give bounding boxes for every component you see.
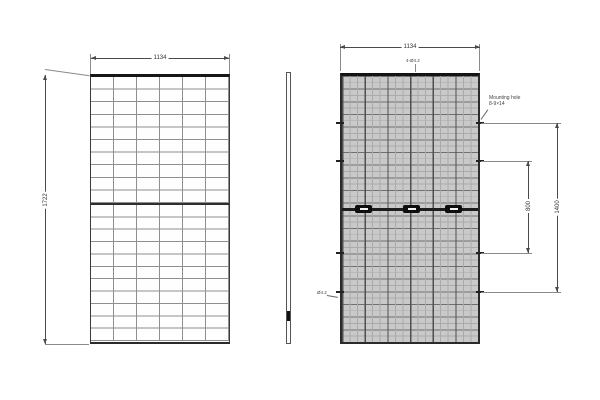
leader-line (481, 109, 489, 119)
dim-arrow (526, 248, 530, 253)
top-hole-note: 4-Ø4.2 (406, 58, 420, 63)
back-inner-dim-label: 800 (526, 199, 532, 213)
mounting-hole-note-line2: 8-9×14 (489, 102, 520, 108)
junction-box (403, 205, 420, 213)
mounting-hole-tick (336, 252, 344, 254)
extension-line (481, 292, 561, 293)
back-panel-frame (340, 73, 480, 344)
side-junction-box-mark (287, 311, 290, 321)
mounting-hole-tick (336, 160, 344, 162)
back-outer-dim-label: 1400 (555, 198, 561, 215)
side-panel-frame (286, 72, 291, 344)
leader-line (415, 64, 416, 72)
mounting-hole-tick (336, 122, 344, 124)
extension-line (45, 344, 89, 345)
drawing-canvas: 1134 1722 1134 4-Ø4.2 (0, 0, 600, 400)
extension-line (229, 54, 230, 74)
dim-arrow (475, 45, 480, 49)
front-width-dim-label: 1134 (152, 55, 169, 61)
front-height-dim-label: 1722 (43, 191, 49, 208)
extension-line (45, 69, 90, 76)
dim-arrow (555, 287, 559, 292)
dim-arrow (224, 56, 229, 60)
dim-arrow (526, 161, 530, 166)
front-height-dimension-line (45, 75, 46, 344)
junction-box (355, 205, 372, 213)
front-panel-frame (90, 74, 230, 344)
grounding-hole-note: Ø4.2 (317, 290, 327, 295)
extension-line (481, 161, 532, 162)
extension-line (481, 123, 561, 124)
dim-arrow (43, 339, 47, 344)
front-cell-grid-top (91, 77, 229, 203)
leader-line (327, 295, 338, 298)
dim-arrow (91, 56, 96, 60)
junction-box (445, 205, 462, 213)
extension-line (481, 253, 532, 254)
mounting-hole-tick (336, 291, 344, 293)
dim-arrow (555, 123, 559, 128)
mounting-hole-note: Mounting hole 8-9×14 (489, 96, 520, 108)
dim-arrow (340, 45, 345, 49)
back-width-dim-label: 1134 (402, 44, 419, 50)
front-cell-grid-bottom (91, 205, 229, 341)
dim-arrow (43, 75, 47, 80)
